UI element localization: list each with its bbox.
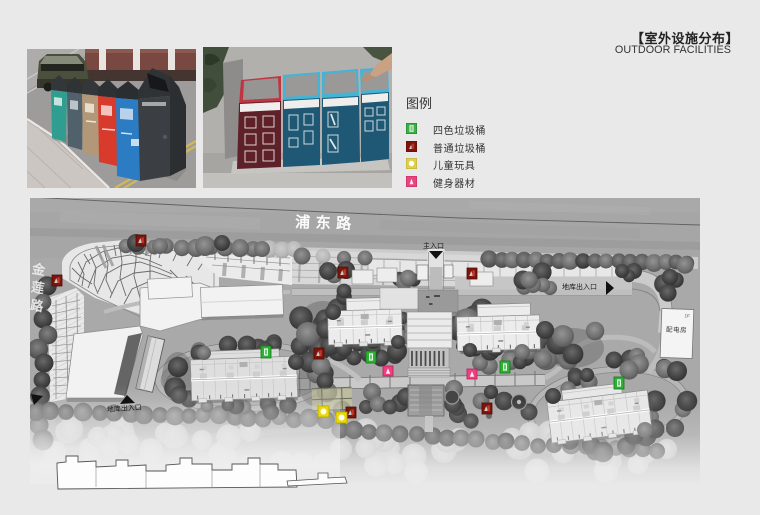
svg-text:地库出入口: 地库出入口 — [562, 282, 597, 291]
svg-text:主入口: 主入口 — [423, 241, 444, 250]
svg-text:1F: 1F — [685, 313, 691, 318]
svg-text:莲: 莲 — [30, 279, 45, 296]
svg-text:浦东路: 浦东路 — [295, 213, 357, 233]
